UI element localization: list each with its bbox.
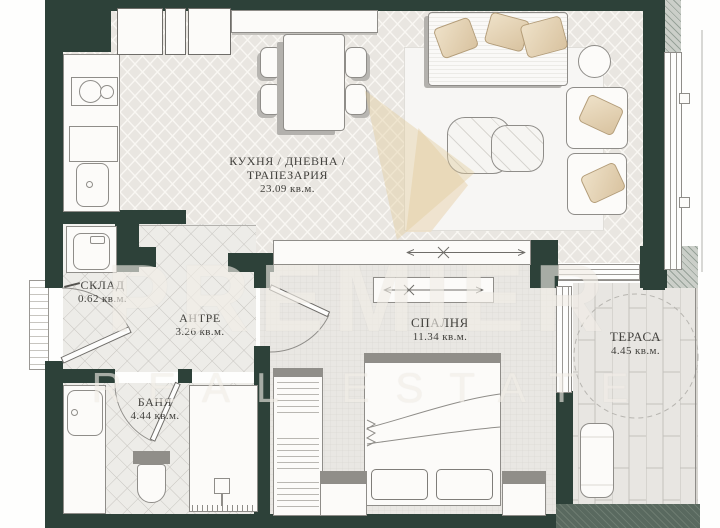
floor-plan: КУХНЯ / ДНЕВНА / ТРАПЕЗАРИЯ 23.09 кв.м. … <box>0 0 720 528</box>
room-area: 23.09 кв.м. <box>200 182 375 196</box>
room-name-line2: ТРАПЕЗАРИЯ <box>200 168 375 182</box>
bed-pillow <box>436 469 493 500</box>
sliding-wardrobe-bedroom <box>373 277 494 303</box>
kitchen-cabinet-1 <box>117 8 163 55</box>
wardrobe-shelves <box>277 382 319 414</box>
shower-drain-grate <box>192 505 255 512</box>
wall-bathroom-north-b <box>178 369 192 383</box>
wall-storage-niche <box>115 224 139 272</box>
stove-burner-large <box>79 80 102 103</box>
wall-kitchen-storage-divider <box>45 210 186 224</box>
toilet-bowl <box>137 464 166 503</box>
bathroom-faucet <box>71 409 78 416</box>
dining-chair <box>345 47 367 78</box>
fridge <box>188 8 231 55</box>
wall-bottom <box>45 514 574 528</box>
wardrobe-shelves <box>277 438 319 472</box>
window-bedroom-terrace <box>556 286 572 393</box>
side-table-round <box>578 45 611 78</box>
terrace-lounge-chair <box>580 423 614 498</box>
dining-chair <box>260 84 282 115</box>
window-handle-bottom <box>679 197 690 208</box>
window-living-right <box>664 52 682 270</box>
wall-bedroom-east <box>530 240 558 288</box>
dining-table <box>283 34 345 131</box>
room-label-storage: СКЛАД 0.62 кв.м. <box>55 278 150 306</box>
room-name: ТЕРАСА <box>588 330 683 344</box>
nightstand-top <box>320 471 367 483</box>
room-name: СПАЛНЯ <box>395 316 485 330</box>
sliding-wardrobe-long <box>273 240 531 265</box>
room-label-terrace: ТЕРАСА 4.45 кв.м. <box>588 330 683 358</box>
hall-tile-floor <box>139 224 256 372</box>
window-handle-top <box>679 93 690 104</box>
room-label-hall: АНТРЕ 3.26 кв.м. <box>155 311 245 339</box>
stove-burner-small <box>100 85 114 99</box>
wardrobe-top-bar <box>273 368 323 376</box>
wall-left-upper <box>45 50 63 288</box>
dishwasher <box>69 126 118 162</box>
room-name: АНТРЕ <box>155 311 245 325</box>
wall-bathroom-north-a <box>63 369 115 383</box>
room-name: СКЛАД <box>55 278 150 292</box>
toilet-tank <box>133 451 170 464</box>
wardrobe-shelves <box>277 482 319 510</box>
terrace-parapet <box>556 504 700 528</box>
bed-footboard <box>364 353 501 362</box>
room-label-bathroom: БАНЯ 4.44 кв.м. <box>110 395 200 423</box>
nightstand <box>502 483 546 516</box>
kitchen-faucet <box>86 181 93 188</box>
room-area: 0.62 кв.м. <box>55 292 150 306</box>
room-label-bedroom: СПАЛНЯ 11.34 кв.м. <box>395 316 485 344</box>
wall-living-terrace-corner <box>640 246 667 288</box>
wall-hall-stub <box>139 247 156 267</box>
room-name: БАНЯ <box>110 395 200 409</box>
dining-chair <box>260 47 282 78</box>
shower-head <box>214 478 230 494</box>
bed-pillow <box>371 469 428 500</box>
wall-bedroom-west-upper <box>254 262 270 288</box>
kitchen-island <box>231 10 378 33</box>
wall-terrace-west <box>556 391 573 514</box>
nightstand-top <box>502 471 546 483</box>
entry-landing-shaft <box>29 280 49 370</box>
room-area: 4.45 кв.м. <box>588 344 683 358</box>
room-area: 3.26 кв.м. <box>155 325 245 339</box>
coffee-table-small <box>491 125 544 172</box>
terrace-sliding-door <box>558 264 640 281</box>
kitchen-cabinet-2 <box>165 8 186 55</box>
washing-machine-drawer <box>90 236 105 244</box>
room-label-kitchen-living: КУХНЯ / ДНЕВНА / ТРАПЕЗАРИЯ 23.09 кв.м. <box>200 154 375 196</box>
nightstand <box>320 483 367 516</box>
wall-top-left-corner <box>45 0 111 52</box>
room-name-line1: КУХНЯ / ДНЕВНА / <box>200 154 375 168</box>
dining-chair <box>345 84 367 115</box>
room-area: 4.44 кв.м. <box>110 409 200 423</box>
wall-left-lower <box>45 361 63 528</box>
room-area: 11.34 кв.м. <box>395 330 485 344</box>
